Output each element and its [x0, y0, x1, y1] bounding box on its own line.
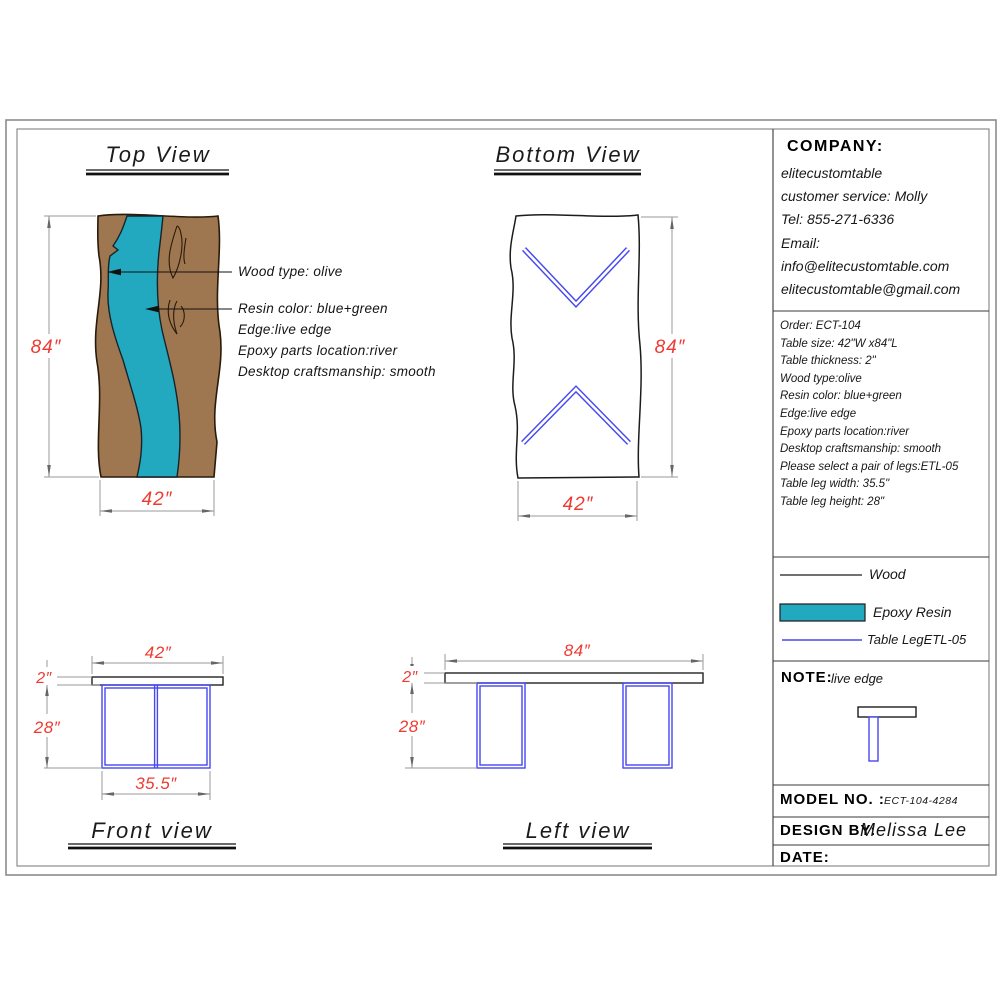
model-no-label: MODEL NO. :: [780, 791, 885, 808]
dim-left-top-width: 84″: [445, 641, 703, 670]
front-view-title: Front view: [91, 818, 213, 843]
dim-bottom-view-height: 84″: [641, 217, 692, 477]
company-info: elitecustomtable customer service: Molly…: [781, 162, 960, 301]
note-leg-shape: [869, 717, 878, 761]
front-view: 42″ 2″ 28″ 35.5″ Front: [29, 643, 236, 848]
legend-wood-label: Wood: [869, 566, 906, 582]
dim-top-view-width: 42″: [100, 480, 214, 516]
dim-bottom-view-width: 42″: [518, 481, 637, 521]
legend-swatches: [780, 575, 865, 640]
dim-text-84: 84″: [655, 337, 686, 358]
note-table-diagram: [858, 707, 916, 761]
dim-front-top-width: 42″: [92, 643, 223, 674]
dim-top-view-height: 84″: [27, 216, 99, 477]
label-edge: Edge:live edge: [238, 322, 332, 337]
table-size: Table size: 42"W x84"L: [780, 336, 958, 354]
left-view-legs: [477, 683, 672, 768]
table-thickness: Table thickness: 2": [780, 353, 958, 371]
company-email-label: Email:: [781, 232, 960, 255]
top-view: Top View Wood type: olive Resin color: b…: [27, 142, 436, 516]
company-email-1: info@elitecustomtable.com: [781, 255, 960, 278]
dim-text-28: 28″: [33, 718, 61, 737]
customer-service: customer service: Molly: [781, 185, 960, 208]
date-label: DATE:: [780, 849, 830, 866]
left-view-tabletop: [445, 673, 703, 683]
model-no-value: ECT-104-4284: [884, 795, 958, 807]
edge-type: Edge:live edge: [780, 406, 958, 424]
dim-text-84: 84″: [564, 641, 591, 660]
company-email-2: elitecustomtable@gmail.com: [781, 278, 960, 301]
label-resin-color: Resin color: blue+green: [238, 301, 388, 316]
label-craftsmanship: Desktop craftsmanship: smooth: [238, 364, 436, 379]
label-epoxy-location: Epoxy parts location:river: [238, 343, 398, 358]
dim-front-leg-height: 28″: [29, 685, 102, 768]
dim-text-2: 2″: [401, 669, 418, 686]
left-view-title: Left view: [526, 818, 631, 843]
resin-color: Resin color: blue+green: [780, 388, 958, 406]
order-specs: Order: ECT-104 Table size: 42"W x84"L Ta…: [780, 318, 958, 512]
dim-text-35-5: 35.5″: [135, 774, 177, 793]
bottom-view: Bottom View 84″ 42″: [494, 142, 692, 521]
company-heading: COMPANY:: [787, 138, 884, 156]
note-heading: NOTE:: [781, 669, 833, 686]
dim-text-84: 84″: [31, 337, 62, 358]
desktop-craftsmanship: Desktop craftsmanship: smooth: [780, 441, 958, 459]
dim-text-42: 42″: [145, 643, 172, 662]
front-view-legs: [102, 685, 210, 768]
note-tabletop-shape: [858, 707, 916, 717]
note-text: live edge: [831, 671, 883, 686]
legs-selection: Please select a pair of legs:ETL-05: [780, 459, 958, 477]
left-view: 84″ 2″ 28″ Left view: [394, 641, 703, 848]
company-name: elitecustomtable: [781, 162, 960, 185]
wood-type: Wood type:olive: [780, 371, 958, 389]
bottom-view-title: Bottom View: [495, 142, 640, 167]
dim-left-leg-height: 28″: [394, 683, 477, 768]
dim-text-42: 42″: [142, 489, 173, 510]
dim-text-42: 42″: [563, 494, 594, 515]
table-leg-width: Table leg width: 35.5": [780, 476, 958, 494]
epoxy-location: Epoxy parts location:river: [780, 424, 958, 442]
legend-resin-label: Epoxy Resin: [873, 604, 952, 620]
order-number: Order: ECT-104: [780, 318, 958, 336]
dim-front-leg-width: 35.5″: [102, 771, 210, 800]
dim-front-thickness: 2″: [33, 660, 100, 687]
front-view-tabletop: [92, 677, 223, 685]
legend-leg-label: Table LegETL-05: [867, 632, 966, 647]
top-view-title: Top View: [105, 142, 210, 167]
table-leg-height: Table leg height: 28": [780, 494, 958, 512]
design-by-value: Melissa Lee: [860, 820, 967, 841]
dim-text-28: 28″: [398, 717, 426, 736]
drawing-sheet: Top View Wood type: olive Resin color: b…: [0, 0, 1000, 1000]
label-wood-type: Wood type: olive: [238, 264, 343, 279]
legend-resin-swatch: [780, 604, 865, 621]
dim-text-2: 2″: [35, 670, 52, 687]
company-tel: Tel: 855-271-6336: [781, 208, 960, 231]
